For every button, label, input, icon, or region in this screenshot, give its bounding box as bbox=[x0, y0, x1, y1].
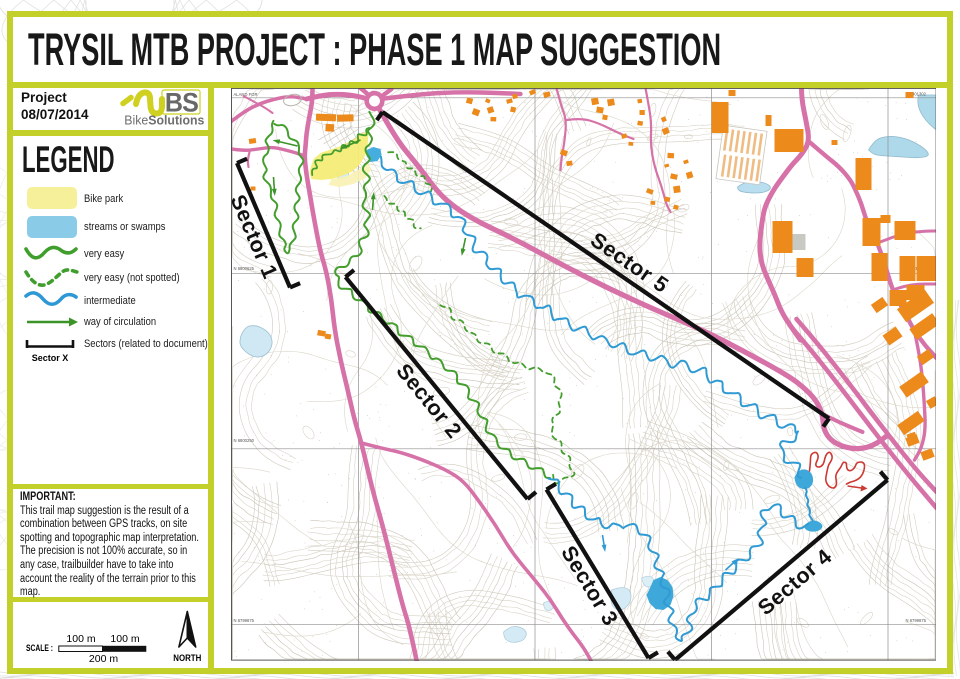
svg-text:BikeSolutions: BikeSolutions bbox=[124, 113, 204, 127]
svg-text:N 6799875: N 6799875 bbox=[905, 618, 926, 623]
svg-text:SCALE :: SCALE : bbox=[26, 643, 53, 654]
svg-text:100 m: 100 m bbox=[66, 633, 95, 645]
svg-text:NORTH: NORTH bbox=[173, 653, 201, 663]
svg-text:200 m: 200 m bbox=[89, 653, 118, 665]
svg-text:Sector X: Sector X bbox=[32, 353, 69, 363]
svg-text:100 m: 100 m bbox=[110, 633, 139, 645]
svg-text:N 6799875: N 6799875 bbox=[233, 618, 254, 623]
svg-text:N 6800250: N 6800250 bbox=[233, 438, 254, 443]
svg-text:N 6800625: N 6800625 bbox=[233, 266, 254, 271]
